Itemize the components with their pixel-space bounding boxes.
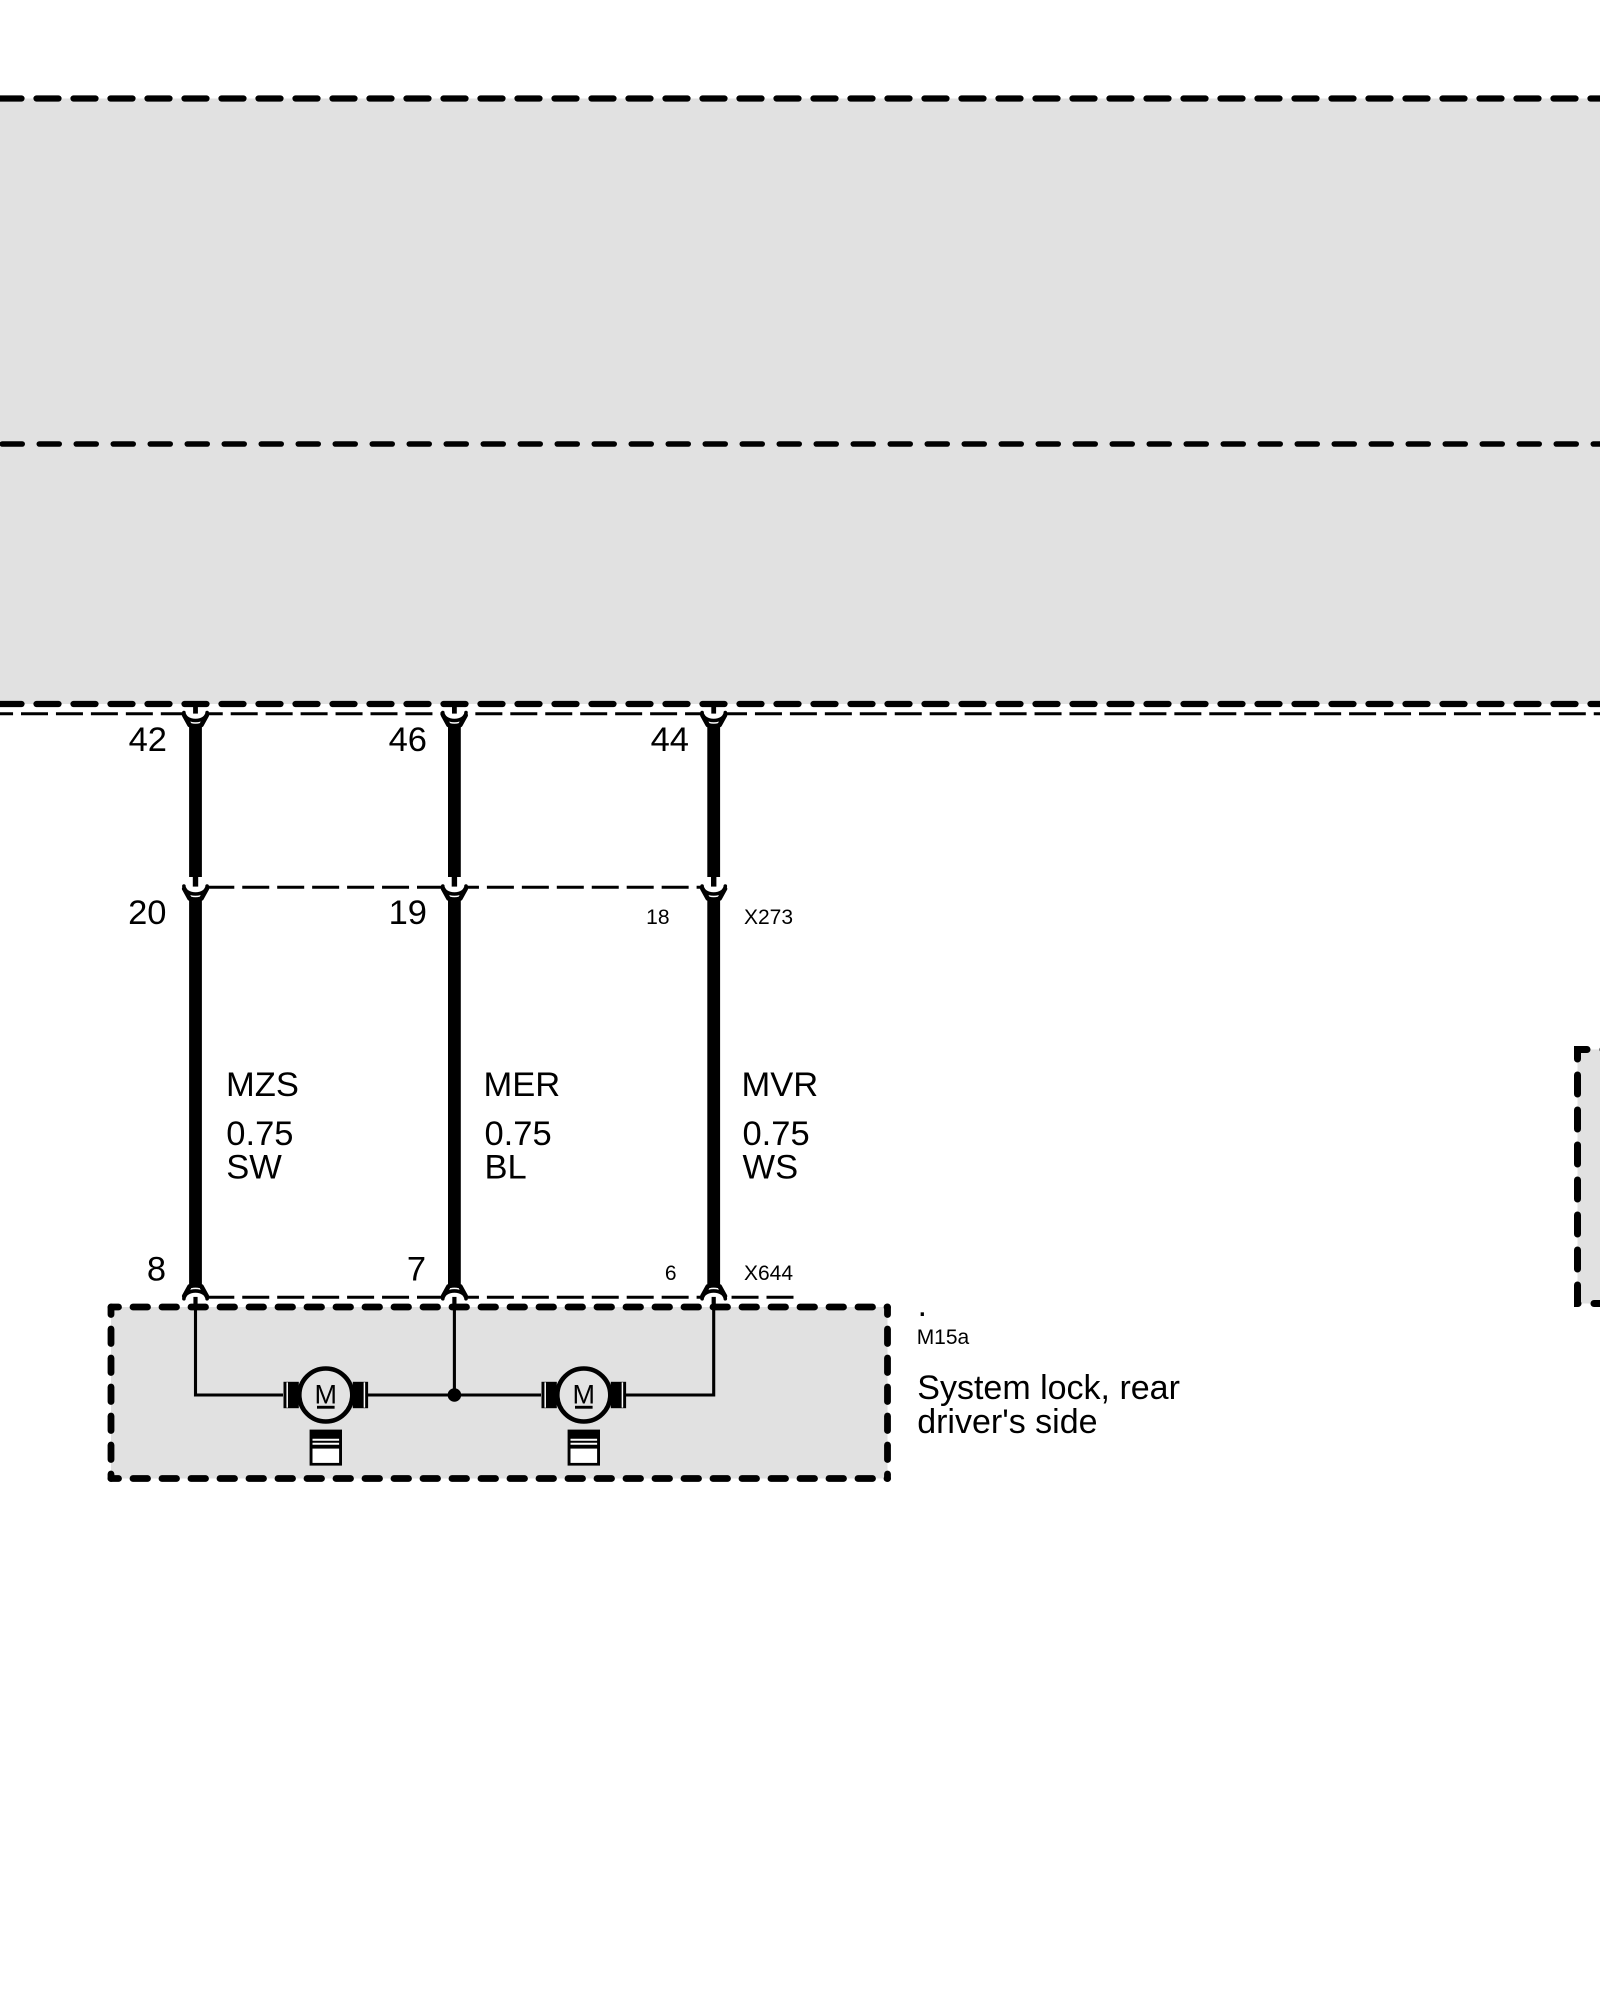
svg-text:42: 42 [129, 721, 167, 759]
svg-text:WS: WS [743, 1149, 799, 1187]
svg-text:6: 6 [665, 1262, 677, 1285]
svg-text:7: 7 [407, 1251, 426, 1289]
svg-text:8: 8 [147, 1251, 166, 1289]
svg-text:.: . [918, 1286, 928, 1324]
svg-text:20: 20 [128, 894, 166, 932]
svg-text:X273: X273 [744, 906, 793, 929]
svg-text:46: 46 [389, 721, 427, 759]
svg-text:BL: BL [485, 1149, 527, 1187]
svg-text:MER: MER [484, 1066, 561, 1104]
svg-text:19: 19 [389, 894, 427, 932]
svg-text:driver's side: driver's side [917, 1403, 1097, 1441]
svg-text:MVR: MVR [742, 1066, 819, 1104]
svg-text:18: 18 [646, 906, 669, 929]
svg-text:SW: SW [226, 1149, 282, 1187]
svg-text:44: 44 [651, 721, 689, 759]
svg-text:X644: X644 [744, 1262, 793, 1285]
svg-text:M15a: M15a [917, 1326, 970, 1349]
svg-text:0.75: 0.75 [226, 1115, 293, 1153]
svg-text:0.75: 0.75 [485, 1115, 552, 1153]
svg-text:0.75: 0.75 [743, 1115, 810, 1153]
svg-text:System lock, rear: System lock, rear [917, 1369, 1180, 1407]
svg-text:MZS: MZS [226, 1066, 299, 1104]
